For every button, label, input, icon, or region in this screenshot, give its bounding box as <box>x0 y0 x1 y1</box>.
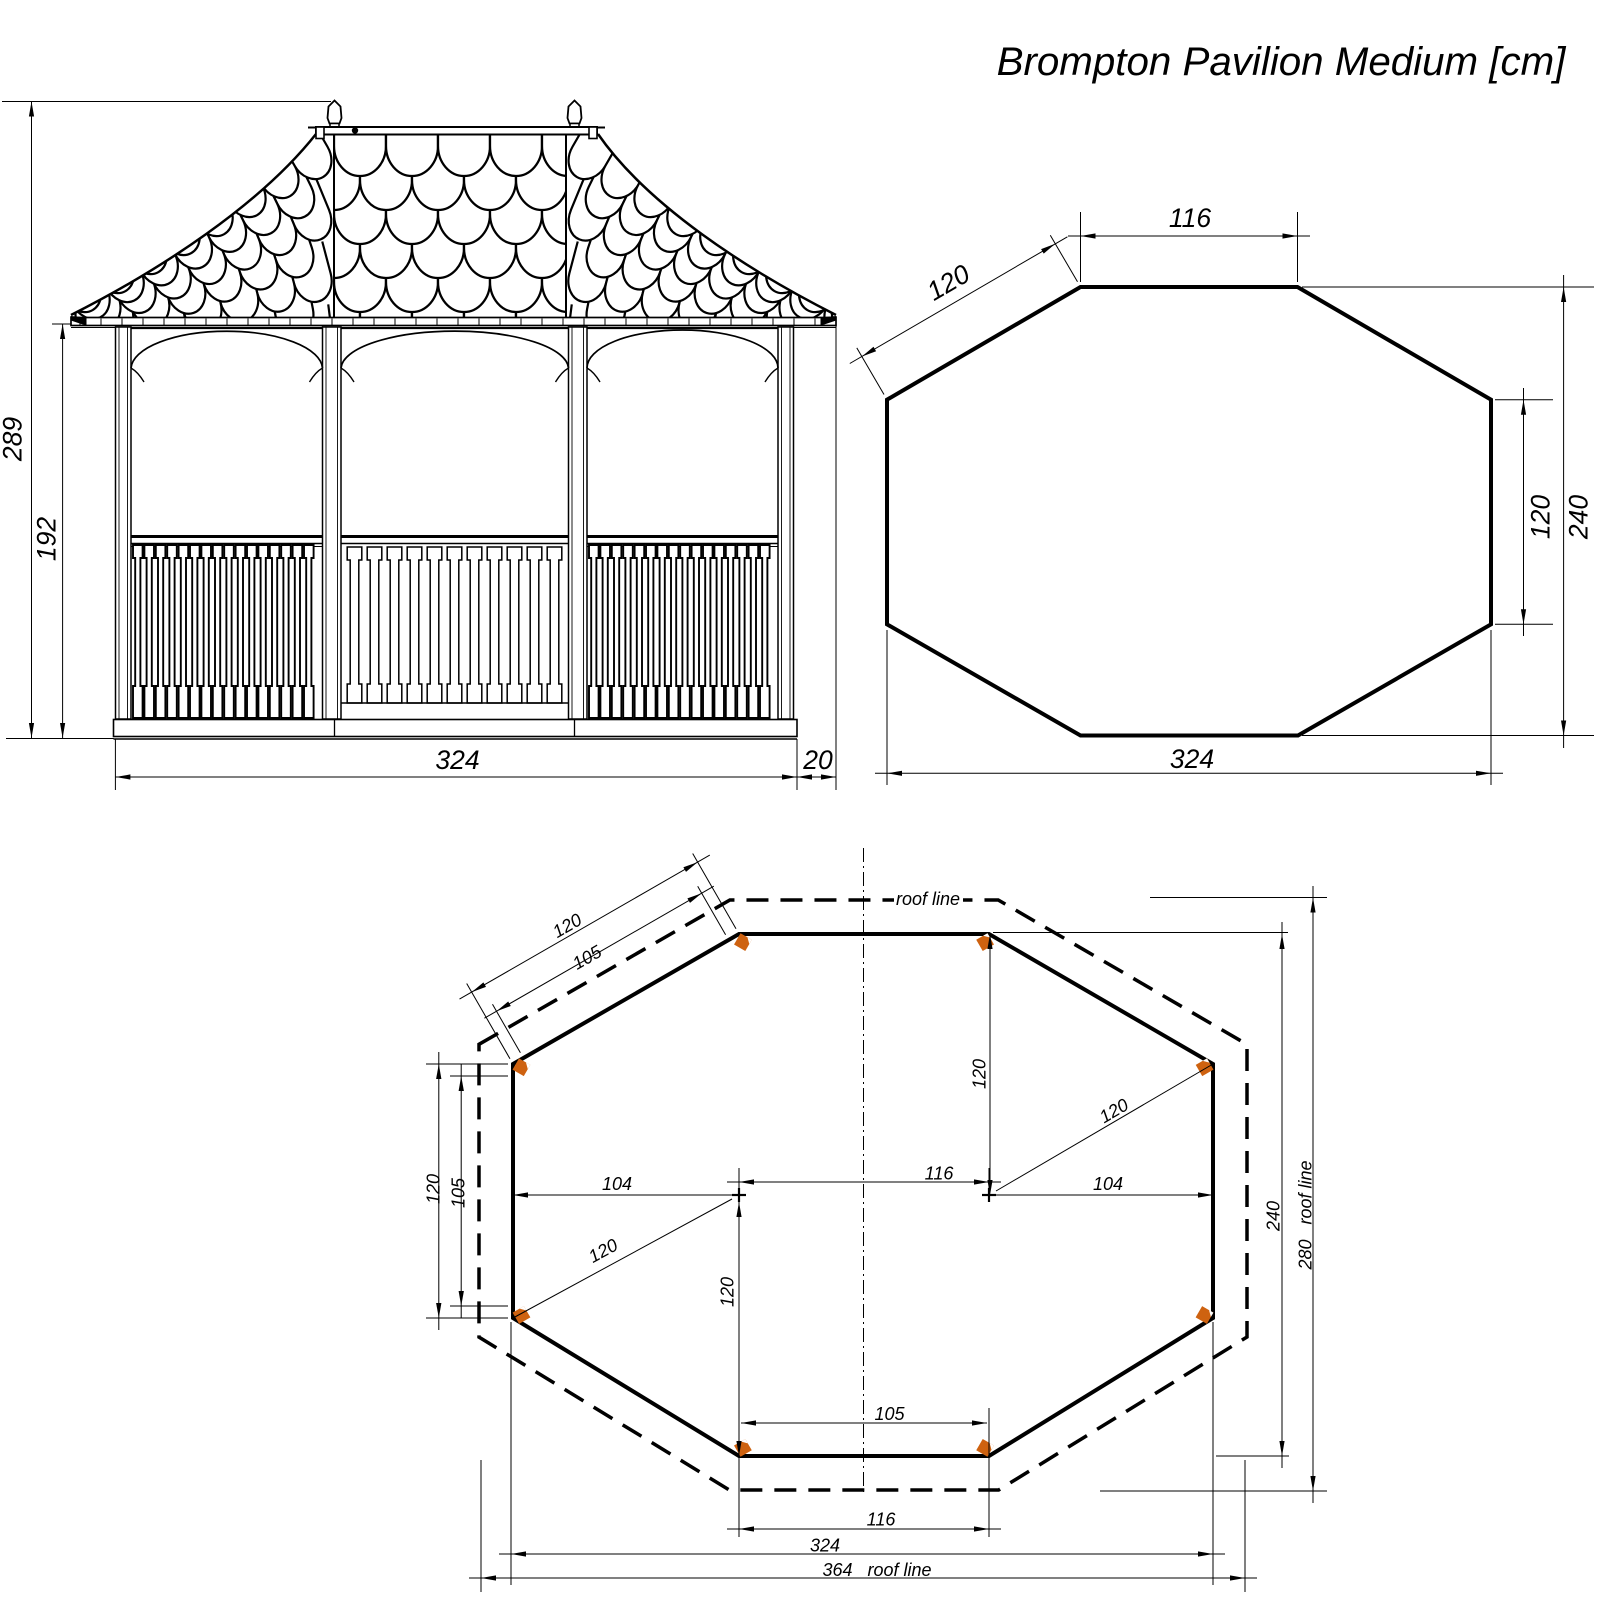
svg-text:104: 104 <box>1093 1174 1123 1194</box>
svg-text:324: 324 <box>435 745 479 775</box>
svg-text:324: 324 <box>810 1536 840 1556</box>
svg-text:120: 120 <box>970 1059 990 1089</box>
svg-text:240: 240 <box>1264 1201 1284 1232</box>
svg-text:120: 120 <box>424 1174 444 1204</box>
svg-text:289: 289 <box>0 417 28 462</box>
svg-text:364 roof line: 364 roof line <box>822 1560 931 1580</box>
svg-text:Brompton Pavilion Medium [cm]: Brompton Pavilion Medium [cm] <box>997 39 1567 84</box>
svg-text:120: 120 <box>718 1277 738 1307</box>
svg-text:105: 105 <box>449 1177 469 1208</box>
svg-text:120: 120 <box>1526 495 1556 539</box>
svg-text:116: 116 <box>1169 203 1212 233</box>
svg-text:116: 116 <box>925 1164 955 1184</box>
svg-text:roof line: roof line <box>896 889 960 909</box>
svg-text:324: 324 <box>1170 744 1214 774</box>
svg-text:240: 240 <box>1564 495 1594 540</box>
svg-text:105: 105 <box>874 1404 905 1424</box>
svg-text:192: 192 <box>32 517 62 561</box>
svg-text:116: 116 <box>867 1510 897 1530</box>
svg-text:280 roof line: 280 roof line <box>1296 1160 1316 1270</box>
svg-text:104: 104 <box>602 1174 632 1194</box>
svg-text:20: 20 <box>802 745 833 775</box>
